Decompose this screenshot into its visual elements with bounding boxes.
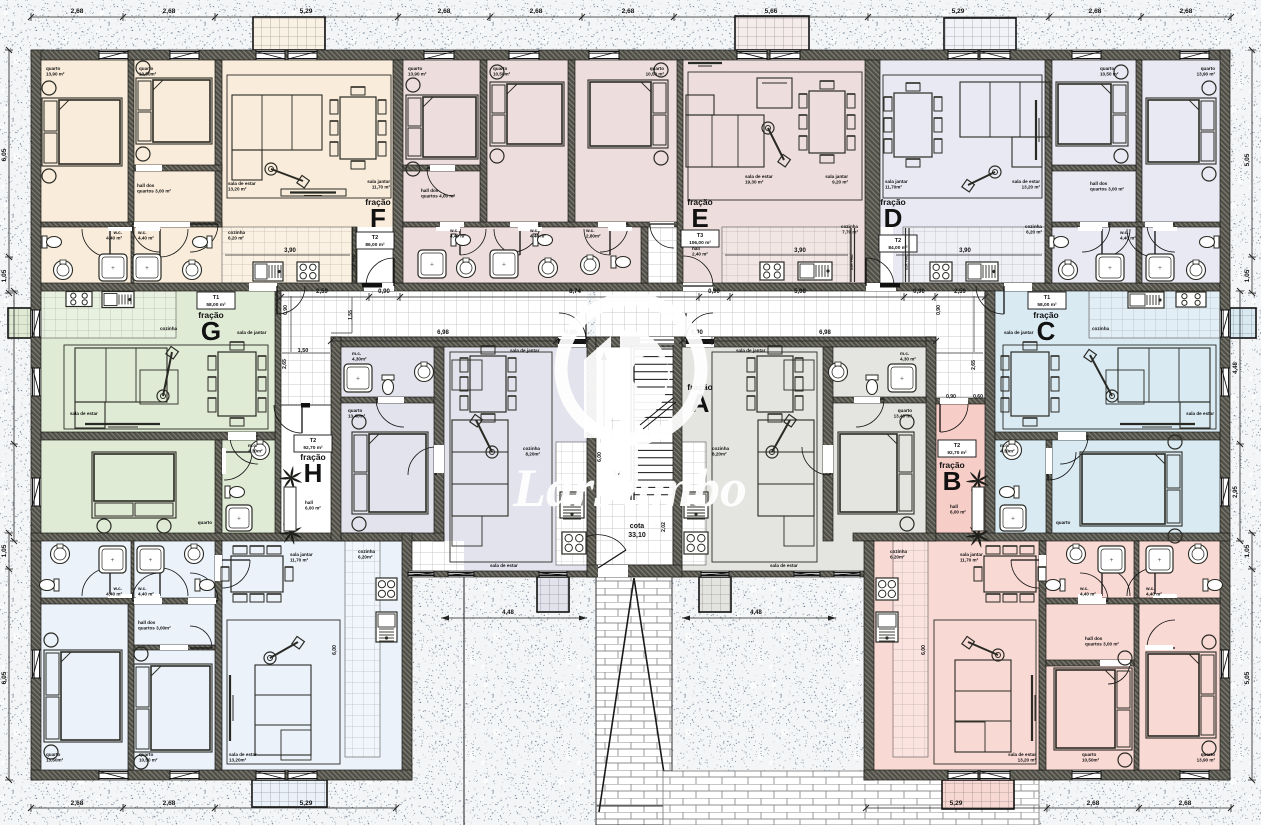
svg-text:quarto: quarto — [348, 408, 362, 413]
svg-text:13,90 m²: 13,90 m² — [1197, 758, 1216, 763]
svg-text:3,90: 3,90 — [959, 248, 971, 254]
svg-text:58,00 m²: 58,00 m² — [1037, 302, 1057, 308]
svg-text:4,40 m²: 4,40 m² — [1146, 592, 1162, 597]
svg-text:+: + — [502, 261, 506, 269]
svg-text:sala de estar: sala de estar — [1008, 752, 1036, 757]
svg-text:0,60: 0,60 — [973, 394, 983, 400]
svg-text:4,40 m²: 4,40 m² — [138, 592, 154, 597]
svg-text:sala de estar: sala de estar — [745, 174, 773, 179]
svg-text:+: + — [145, 264, 149, 272]
svg-text:quarto: quarto — [46, 66, 60, 71]
svg-text:T2: T2 — [954, 443, 960, 449]
svg-text:quarto: quarto — [898, 408, 912, 413]
svg-text:cozinha: cozinha — [841, 224, 859, 229]
svg-text:+: + — [430, 261, 434, 269]
svg-text:4,40 m²: 4,40 m² — [1080, 592, 1096, 597]
svg-text:quarto: quarto — [493, 66, 507, 71]
svg-text:ESP. FRIG: ESP. FRIG — [850, 254, 854, 270]
svg-text:cozinha: cozinha — [712, 446, 730, 451]
svg-text:2,68: 2,68 — [71, 8, 84, 15]
svg-text:4,30 m²: 4,30 m² — [900, 357, 916, 362]
svg-text:sala de estar: sala de estar — [490, 563, 518, 568]
svg-text:0,90: 0,90 — [913, 289, 925, 295]
svg-text:2,68: 2,68 — [71, 800, 84, 807]
svg-text:10,50m²: 10,50m² — [493, 72, 511, 77]
svg-text:quartos 3,00 m²: quartos 3,00 m² — [1090, 187, 1124, 192]
svg-text:+: + — [111, 264, 115, 272]
svg-text:cozinha: cozinha — [358, 549, 376, 554]
svg-text:cota: cota — [630, 523, 645, 530]
svg-text:9,20 m²: 9,20 m² — [832, 180, 848, 185]
svg-text:6,20m²: 6,20m² — [358, 555, 373, 560]
svg-text:2,68: 2,68 — [530, 8, 543, 15]
svg-text:quarto: quarto — [1100, 66, 1114, 71]
svg-text:H: H — [304, 458, 323, 488]
svg-text:13,40m²: 13,40m² — [348, 414, 366, 419]
svg-text:sala de estar: sala de estar — [1186, 411, 1214, 416]
svg-text:quartos 3,00m²: quartos 3,00m² — [138, 626, 171, 631]
svg-text:ESP. FRIG: ESP. FRIG — [905, 254, 909, 270]
svg-text:hall: hall — [692, 246, 700, 251]
svg-text:cozinha: cozinha — [1092, 326, 1110, 331]
svg-text:92,70 m²: 92,70 m² — [303, 445, 323, 451]
svg-text:+: + — [356, 375, 360, 383]
svg-text:sala de jantar: sala de jantar — [510, 348, 540, 353]
svg-text:+: + — [111, 556, 115, 564]
svg-text:6,05: 6,05 — [1, 671, 8, 684]
svg-text:2,68: 2,68 — [163, 800, 176, 807]
svg-text:13,20 m²: 13,20 m² — [1018, 758, 1037, 763]
svg-text:2,65: 2,65 — [971, 360, 977, 370]
svg-text:4,40 m²: 4,40 m² — [106, 592, 122, 597]
svg-text:w.c.: w.c. — [112, 230, 122, 235]
svg-text:w.c.: w.c. — [585, 228, 595, 233]
svg-text:w.c.: w.c. — [1079, 586, 1089, 591]
svg-text:sala jantar: sala jantar — [290, 552, 313, 557]
svg-text:quarto: quarto — [1201, 752, 1215, 757]
svg-text:quarto: quarto — [408, 66, 422, 71]
svg-text:2,80m²: 2,80m² — [586, 234, 601, 239]
svg-text:quartos 3,00 m²: quartos 3,00 m² — [137, 189, 171, 194]
svg-text:4,40 m²: 4,40 m² — [450, 234, 466, 239]
svg-text:2,68: 2,68 — [622, 8, 635, 15]
svg-text:sala jantar: sala jantar — [367, 179, 390, 184]
svg-text:1,55: 1,55 — [348, 310, 354, 320]
svg-text:5,29: 5,29 — [300, 8, 313, 15]
svg-text:+: + — [1110, 556, 1114, 564]
svg-text:5,66: 5,66 — [765, 8, 778, 15]
svg-text:hall: hall — [305, 500, 313, 505]
svg-text:6,98: 6,98 — [819, 330, 831, 336]
svg-text:11,70 m²: 11,70 m² — [290, 558, 309, 563]
svg-text:quarto: quarto — [46, 752, 60, 757]
svg-text:E: E — [691, 203, 708, 233]
svg-text:+: + — [900, 375, 904, 383]
svg-text:cozinha: cozinha — [1025, 224, 1043, 229]
svg-text:5,29: 5,29 — [300, 800, 313, 807]
svg-text:hall dos: hall dos — [421, 188, 439, 193]
svg-text:0,90: 0,90 — [936, 305, 942, 315]
svg-text:4,48: 4,48 — [750, 610, 762, 616]
svg-text:m.c.: m.c. — [900, 351, 909, 356]
svg-text:+: + — [1158, 556, 1162, 564]
svg-text:quarto: quarto — [139, 66, 153, 71]
svg-text:4,48: 4,48 — [1233, 362, 1239, 374]
svg-text:quarto: quarto — [139, 752, 153, 757]
svg-text:13,90 m²: 13,90 m² — [1197, 72, 1216, 77]
svg-text:3,90: 3,90 — [794, 248, 806, 254]
svg-text:sala jantar: sala jantar — [885, 179, 908, 184]
svg-text:5,05: 5,05 — [1244, 671, 1251, 684]
svg-text:+: + — [1108, 264, 1112, 272]
svg-text:sala de jantar: sala de jantar — [1004, 330, 1034, 335]
svg-text:cozinha: cozinha — [160, 326, 178, 331]
svg-text:13,20m²: 13,20m² — [229, 758, 247, 763]
svg-text:13,40 m²: 13,40 m² — [894, 414, 913, 419]
svg-text:5,05: 5,05 — [1244, 153, 1251, 166]
svg-text:11,70 m²: 11,70 m² — [372, 185, 391, 190]
svg-text:sala de jantar: sala de jantar — [237, 330, 267, 335]
svg-text:6,05: 6,05 — [1, 148, 8, 161]
svg-text:6,00 m²: 6,00 m² — [305, 506, 321, 511]
svg-text:0,90: 0,90 — [708, 289, 720, 295]
svg-text:10,50m²: 10,50m² — [139, 72, 157, 77]
svg-text:7,70 m²: 7,70 m² — [842, 230, 858, 235]
svg-text:cozinha: cozinha — [228, 230, 246, 235]
svg-text:8,74: 8,74 — [569, 289, 581, 295]
svg-text:8,20m²: 8,20m² — [712, 452, 727, 457]
svg-text:58,00 m²: 58,00 m² — [206, 302, 226, 308]
svg-text:w.c.: w.c. — [449, 228, 459, 233]
svg-text:hall dos: hall dos — [1090, 181, 1108, 186]
svg-text:4,30m²: 4,30m² — [248, 449, 263, 454]
svg-text:sala jantar: sala jantar — [960, 552, 983, 557]
svg-text:m.c.: m.c. — [1000, 443, 1009, 448]
svg-text:10,50 m²: 10,50 m² — [139, 758, 158, 763]
svg-text:6,98: 6,98 — [437, 330, 449, 336]
svg-text:hall dos: hall dos — [138, 620, 156, 625]
svg-text:6,00 m²: 6,00 m² — [950, 510, 966, 515]
svg-text:0,90: 0,90 — [283, 305, 289, 315]
svg-text:19,30 m²: 19,30 m² — [745, 180, 764, 185]
svg-text:2,65: 2,65 — [282, 359, 288, 369]
svg-text:T3: T3 — [697, 233, 703, 239]
svg-text:C: C — [1037, 316, 1056, 346]
svg-text:1,05: 1,05 — [1, 544, 8, 557]
svg-text:3,90: 3,90 — [284, 248, 296, 254]
svg-text:6,00: 6,00 — [921, 645, 927, 655]
svg-text:5,08: 5,08 — [794, 289, 806, 295]
svg-text:sala jantar: sala jantar — [825, 174, 848, 179]
svg-text:G: G — [201, 316, 221, 346]
svg-text:10,50 m²: 10,50 m² — [1100, 72, 1119, 77]
svg-text:11,70m²: 11,70m² — [885, 185, 902, 190]
svg-text:w.c.: w.c. — [137, 230, 147, 235]
svg-text:4,40 m²: 4,40 m² — [1120, 236, 1136, 241]
svg-text:2,59: 2,59 — [954, 289, 966, 295]
svg-text:4,40 m²: 4,40 m² — [106, 236, 122, 241]
svg-text:T2: T2 — [372, 235, 378, 241]
svg-text:6,20 m²: 6,20 m² — [228, 236, 244, 241]
svg-text:quarto: quarto — [1201, 66, 1215, 71]
svg-text:B: B — [943, 466, 962, 496]
svg-text:quartos 3,00 m²: quartos 3,00 m² — [1085, 642, 1119, 647]
svg-text:13,20 m²: 13,20 m² — [228, 187, 247, 192]
svg-text:hall dos: hall dos — [1085, 636, 1103, 641]
svg-text:2,95: 2,95 — [1233, 486, 1239, 498]
svg-text:w.c.: w.c. — [137, 586, 147, 591]
svg-text:1,05: 1,05 — [1244, 269, 1251, 282]
svg-text:86,00 m²: 86,00 m² — [365, 242, 385, 248]
svg-text:D: D — [884, 203, 903, 233]
svg-text:sala de estar: sala de estar — [70, 411, 98, 416]
svg-text:w.c.: w.c. — [529, 228, 539, 233]
svg-text:m.c.: m.c. — [352, 351, 361, 356]
svg-text:+: + — [237, 515, 241, 523]
svg-text:13,90 m²: 13,90 m² — [46, 72, 65, 77]
svg-text:33,10: 33,10 — [628, 532, 646, 539]
svg-text:+: + — [1158, 264, 1162, 272]
svg-text:5,29: 5,29 — [952, 8, 965, 15]
svg-text:cozinha: cozinha — [890, 549, 908, 554]
svg-text:2,59: 2,59 — [316, 289, 328, 295]
svg-text:sala de estar: sala de estar — [1012, 179, 1040, 184]
svg-text:4,48: 4,48 — [502, 610, 514, 616]
svg-text:T1: T1 — [213, 295, 219, 301]
svg-text:4,30m²: 4,30m² — [1000, 449, 1015, 454]
svg-text:sala de estar: sala de estar — [770, 563, 798, 568]
svg-text:1,05: 1,05 — [1244, 544, 1251, 557]
svg-text:92,70 m²: 92,70 m² — [947, 450, 967, 456]
svg-text:11,70 m²: 11,70 m² — [960, 558, 979, 563]
svg-text:sala de estar: sala de estar — [229, 752, 257, 757]
svg-text:13,20 m²: 13,20 m² — [1022, 185, 1041, 190]
svg-text:2,68: 2,68 — [1089, 8, 1102, 15]
svg-text:+: + — [149, 556, 153, 564]
svg-text:quartos 4,00 m²: quartos 4,00 m² — [421, 194, 455, 199]
svg-text:6,20 m²: 6,20 m² — [1026, 230, 1042, 235]
svg-text:2,68: 2,68 — [1179, 800, 1192, 807]
svg-text:T2: T2 — [895, 238, 901, 244]
svg-text:8,20m²: 8,20m² — [525, 452, 540, 457]
svg-text:6,20m²: 6,20m² — [890, 555, 905, 560]
svg-text:w.c.: w.c. — [112, 586, 122, 591]
svg-text:hall: hall — [950, 504, 958, 509]
svg-text:T1: T1 — [1044, 295, 1050, 301]
svg-text:+: + — [1011, 515, 1015, 523]
svg-text:F: F — [370, 203, 386, 233]
svg-text:2,02: 2,02 — [661, 522, 667, 532]
svg-text:T2: T2 — [310, 438, 316, 444]
svg-text:m.c.: m.c. — [248, 443, 257, 448]
svg-text:2,68: 2,68 — [163, 8, 176, 15]
svg-text:LarJumbo: LarJumbo — [512, 458, 747, 518]
svg-text:hall dos: hall dos — [137, 183, 155, 188]
svg-text:ESP. FRIG: ESP. FRIG — [352, 254, 356, 270]
svg-text:4,40 m²: 4,40 m² — [138, 236, 154, 241]
svg-text:10,50 m²: 10,50 m² — [646, 72, 665, 77]
svg-text:sala de estar: sala de estar — [228, 181, 256, 186]
svg-text:quarto: quarto — [650, 66, 664, 71]
svg-text:10,50m²: 10,50m² — [1082, 758, 1100, 763]
svg-text:6,00: 6,00 — [332, 645, 338, 655]
svg-text:2,40 m²: 2,40 m² — [692, 252, 708, 257]
svg-text:2,68: 2,68 — [1180, 8, 1193, 15]
svg-text:w.c.: w.c. — [1145, 586, 1155, 591]
svg-text:2,68: 2,68 — [438, 8, 451, 15]
svg-text:w.c.: w.c. — [1119, 230, 1129, 235]
svg-text:quarto: quarto — [198, 520, 212, 525]
svg-text:quarto: quarto — [1082, 752, 1096, 757]
svg-text:13,90 m²: 13,90 m² — [408, 72, 427, 77]
svg-text:4,30m²: 4,30m² — [352, 357, 367, 362]
svg-text:5,29: 5,29 — [950, 800, 963, 807]
svg-text:quarto: quarto — [1056, 520, 1070, 525]
svg-text:4,40 m²: 4,40 m² — [530, 234, 546, 239]
svg-text:cozinha: cozinha — [523, 446, 541, 451]
svg-text:13,60m²: 13,60m² — [46, 758, 64, 763]
svg-text:2,68: 2,68 — [1087, 800, 1100, 807]
svg-text:0,90: 0,90 — [378, 289, 390, 295]
svg-text:sala de jantar: sala de jantar — [736, 348, 766, 353]
svg-text:1,05: 1,05 — [1, 269, 8, 282]
svg-text:0,90: 0,90 — [946, 394, 956, 400]
